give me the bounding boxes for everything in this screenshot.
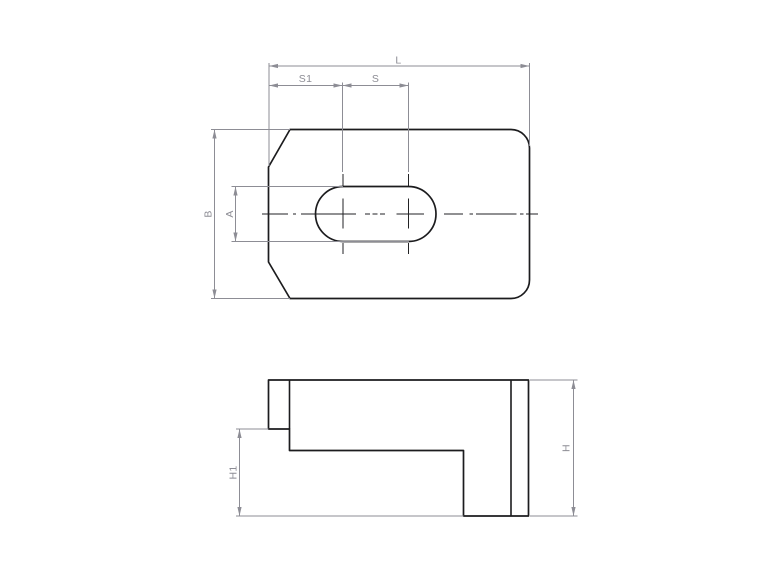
arrowhead-down [571,507,575,516]
top-view: L S1 S [203,55,539,299]
dimension-H: H [530,380,578,516]
profile-outline [269,380,529,516]
dimension-H1: H1 [228,429,464,516]
arrowhead-down [212,290,216,299]
dim-label-A: A [224,210,236,217]
technical-drawing: L S1 S [0,0,779,584]
drawing-canvas: L S1 S [0,0,779,584]
arrowhead-left [343,83,352,87]
arrowhead-up [233,187,237,196]
arrowhead-right [334,83,343,87]
dim-label-S1: S1 [299,73,312,85]
arrowhead-down [233,233,237,242]
dimension-L: L [269,55,530,167]
dimension-S1: S1 [269,73,343,172]
dim-label-L: L [395,55,401,67]
dim-label-S: S [372,73,379,85]
arrowhead-up [571,380,575,389]
arrowhead-up [212,130,216,139]
side-view: H H1 [228,380,578,516]
arrowhead-down [237,507,241,516]
arrowhead-right [521,64,530,68]
dim-label-H1: H1 [228,465,240,479]
arrowhead-left [269,83,278,87]
dimension-S: S [343,73,409,172]
dim-label-B: B [203,210,215,217]
dim-label-H: H [561,444,573,452]
arrowhead-up [237,429,241,438]
arrowhead-right [400,83,409,87]
arrowhead-left [269,64,278,68]
